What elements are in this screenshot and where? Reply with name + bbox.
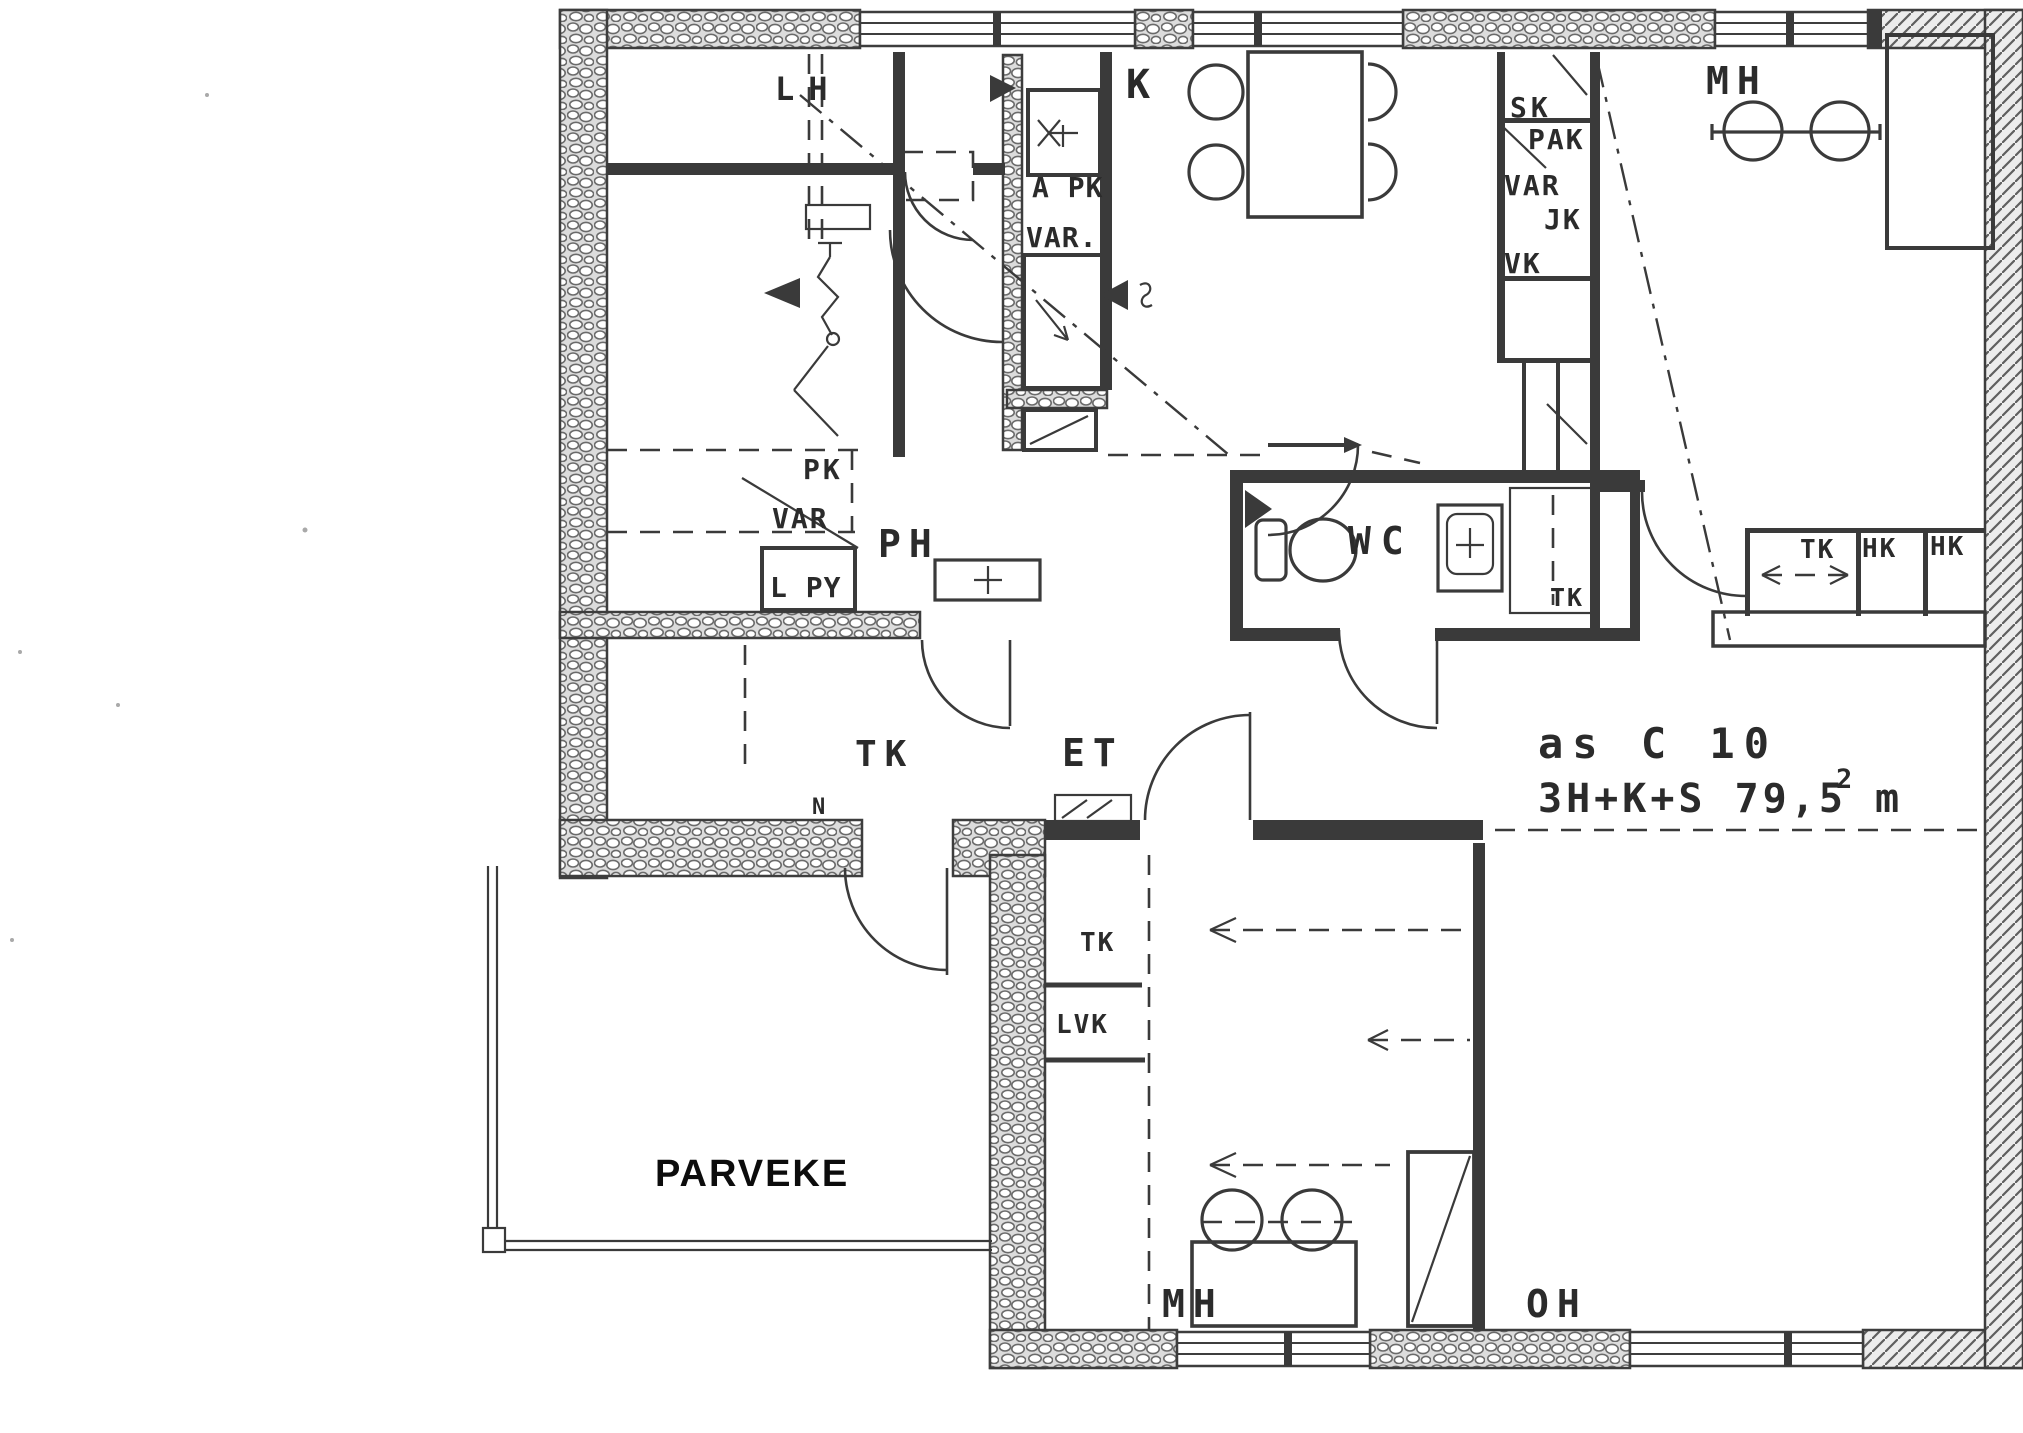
balcony-corner-post [483,1228,505,1252]
wall-bmh-top-right [1253,820,1483,840]
chair [1189,145,1243,199]
wall-bottom-1 [990,1330,1177,1368]
closet-var-box [1024,255,1102,388]
chair [1368,144,1396,200]
tk-room-door [922,640,1010,728]
corridor-door-2 [890,230,1002,342]
wall-closet-col-left [1497,52,1505,362]
closet-label-jk: JK [1544,203,1582,236]
balcony-label: PARVEKE [655,1153,849,1195]
wall-balcony-top-1 [560,820,862,876]
bedroom-bottom-furniture [1045,795,1474,1326]
wall-closet-col-right [1590,52,1600,628]
closet-label-hk-1: HK [1862,534,1897,564]
wall-mh-oh [1713,612,1985,646]
wall-inner-hatch [560,612,920,638]
label-north-mark: N [812,795,825,820]
faucet [1456,528,1484,558]
room-label-kitchen: K [1126,62,1150,108]
shower-symbol [818,243,842,335]
dashed-lines [607,54,1985,1330]
wall-right [1985,10,2023,1368]
unit-label: as C 10 [1538,719,1778,768]
desk [1712,124,1880,140]
wall-left [560,10,607,878]
faucet [974,566,1002,594]
closet-label-var-top: VAR [1504,169,1561,202]
room-label-hall: ET [1062,731,1124,775]
room-label-washroom: PH [878,522,940,566]
closet-label-tk-wc: TK [1550,583,1584,612]
closet-label-vk: VK [1504,247,1542,280]
wardrobe-diagonal [1412,1156,1470,1322]
bedroom-bottom-door [1145,712,1250,820]
area-superscript: 2 [1836,764,1852,795]
closet-row-left [1745,528,1750,616]
closet-label-lpy: L PY [770,571,841,604]
wall-top-3 [1403,10,1715,48]
bedroom-top-door [1642,492,1746,596]
room-label-sauna: LH [775,70,842,108]
wall-corridor-left [893,52,905,457]
corridor-dashed-box [903,152,973,200]
section-line-2 [1597,60,1730,640]
apk-symbol [1038,120,1078,147]
wall-bmh-top-left [1045,820,1140,840]
duct-line [1522,363,1526,471]
closet-divider [1497,358,1590,363]
closet-label-pk-left: PK [803,453,843,486]
wall-wc-right [1630,470,1640,641]
closet-label-sk: SK [1510,91,1552,124]
wc-door [1339,628,1437,728]
closet-label-lvk: LVK [1056,1010,1109,1040]
closet-label-hk-2: HK [1930,532,1965,562]
closet-diag [1030,416,1088,444]
window [1630,1332,1863,1366]
labels: LH K MH SK PAK VAR JK VK A PK VAR. PK VA… [655,59,1965,1326]
wall-bottom-2 [1370,1330,1630,1368]
room-label-wc: WC [1348,519,1414,563]
closet-row-divider [1923,528,1928,616]
chair [1368,64,1396,120]
room-label-tk: TK [855,734,914,775]
window [1715,12,1868,46]
closet-label-var-left: VAR [772,502,829,535]
wall-wc-bottom-left [1230,628,1340,641]
window [860,12,1135,46]
chair [1189,65,1243,119]
wall-wc-top [1230,470,1640,483]
vent-squiggle [1140,283,1152,306]
closet-label-tk-mh: TK [1800,535,1835,565]
wall-mid-vertical [990,855,1045,1368]
wall-lh-bottom-stub [973,163,1005,175]
wall-mh-door-stub [1597,480,1645,492]
balcony-door [845,868,947,975]
door-mat-lines [1062,800,1112,818]
vent-wedge-left [764,278,800,308]
closet-label-tk-bottom: TK [1080,928,1115,958]
window [1177,1332,1370,1366]
floor-slope-lines [794,346,838,436]
wall-lh-bottom [607,163,893,175]
corridor-door-1 [905,172,973,240]
wall-wc-left [1230,470,1243,641]
closet-label-apk: A PK [1032,171,1103,204]
floor-plan-canvas: LH K MH SK PAK VAR JK VK A PK VAR. PK VA… [0,0,2023,1433]
closet-label-pak: PAK [1528,123,1585,156]
floor-plan-drawing: LH K MH SK PAK VAR JK VK A PK VAR. PK VA… [0,0,2023,1433]
shower-tray [806,205,870,229]
interior-walls [607,52,1985,1330]
room-label-living: OH [1526,1282,1588,1326]
wall-post [1868,10,1882,48]
wardrobe [1887,35,1993,248]
room-label-bedroom-top: MH [1706,59,1768,103]
wall-top-2 [1135,10,1193,48]
kitchen-table-set [1189,52,1396,217]
window [1193,12,1403,46]
room-label-bedroom-bottom: MH [1162,1282,1224,1326]
door-mat [1055,795,1131,821]
wall-hatch-stub [1007,390,1107,408]
closet-row-divider [1856,528,1861,616]
furniture [764,35,1993,1326]
drain [827,333,839,345]
wall-wc-bottom-right [1435,628,1640,641]
closet-label-var-mid: VAR. [1026,221,1097,254]
scan-artifacts [10,93,308,942]
toilet-tank [1256,520,1286,580]
toilet-bowl [1290,519,1356,581]
